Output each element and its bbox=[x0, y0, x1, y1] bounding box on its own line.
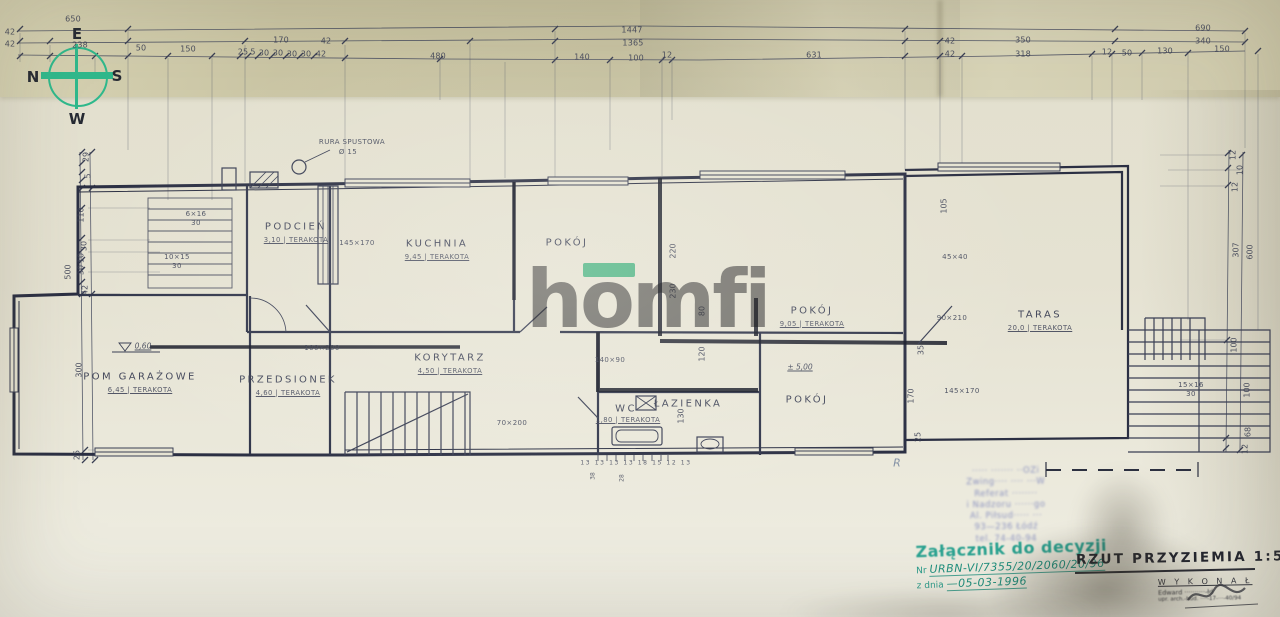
dim-label: 42 bbox=[945, 50, 956, 59]
dim-label: 300 bbox=[75, 362, 84, 377]
annotation-label: Ø 15 bbox=[339, 148, 357, 156]
room-area-label: 3,10 | TERAKOTA bbox=[264, 236, 329, 244]
dim-label: 130 bbox=[677, 408, 686, 423]
room-area-label: 4,60 | TERAKOTA bbox=[256, 389, 321, 397]
room-area-label: 9,45 | TERAKOTA bbox=[405, 253, 470, 261]
dim-label: 238 bbox=[72, 41, 88, 50]
dim-label: 5 bbox=[84, 173, 93, 178]
dim-label: 50 bbox=[1122, 49, 1133, 58]
dim-label: 130 bbox=[1157, 47, 1173, 56]
room-label: POKÓJ bbox=[546, 238, 589, 249]
dim-label: 1447 bbox=[621, 26, 642, 35]
dim-label: 307 bbox=[1232, 242, 1241, 257]
dim-label: 25 bbox=[238, 48, 249, 57]
dim-label: 30 bbox=[80, 241, 89, 251]
annotation-label: 10×15 bbox=[164, 253, 190, 261]
dim-label: 12 bbox=[1241, 444, 1250, 454]
annotation-label: 70×200 bbox=[497, 419, 528, 427]
dim-label: 42 bbox=[316, 50, 327, 59]
dim-label: 30 bbox=[259, 49, 270, 58]
dim-label: 30 bbox=[301, 50, 312, 59]
homfi-logo-text: homfi bbox=[526, 253, 769, 346]
homfi-logo-macron bbox=[583, 263, 635, 277]
dim-label: 105 bbox=[940, 198, 949, 213]
dim-label: 110 bbox=[77, 207, 86, 222]
dim-label: 100 bbox=[1243, 382, 1252, 397]
room-area-label: 6,45 | TERAKOTA bbox=[108, 386, 173, 394]
bottom-edge-shadow bbox=[780, 588, 1110, 617]
annotation-label: RURA SPUSTOWA bbox=[319, 138, 385, 146]
room-label: WC bbox=[615, 404, 637, 415]
dim-label: 10 bbox=[1236, 165, 1245, 175]
dim-label: 68 bbox=[1244, 427, 1253, 437]
room-label: ŁAZIENKA bbox=[654, 399, 722, 410]
annotation-label: 45×40 bbox=[942, 253, 968, 261]
room-label: PODCIEŃ bbox=[265, 222, 327, 233]
dim-label: 480 bbox=[430, 52, 446, 61]
dim-label: 25 bbox=[73, 450, 82, 460]
room-label: KUCHNIA bbox=[406, 239, 468, 250]
annotation-label: 140×90 bbox=[595, 356, 626, 364]
dim-label: 150 bbox=[1214, 45, 1230, 54]
scanned-floor-plan-photo: E N S W 65042422385015017042255303030304… bbox=[0, 0, 1280, 617]
dim-label: 100 bbox=[1230, 337, 1239, 352]
annotation-label: 30 bbox=[191, 219, 201, 227]
dim-label: 38 bbox=[590, 472, 597, 480]
dim-label: 42 bbox=[5, 28, 16, 37]
dim-label: 50 bbox=[136, 44, 147, 53]
room-area-label: 20,0 | TERAKOTA bbox=[1008, 324, 1073, 332]
dim-label: 340 bbox=[1195, 37, 1211, 46]
dim-label: 29 bbox=[82, 152, 91, 162]
dim-label: 170 bbox=[907, 388, 916, 403]
room-label: POKÓJ bbox=[786, 395, 829, 406]
dim-label: 12 bbox=[662, 51, 673, 60]
room-label: POM GARAŻOWE bbox=[83, 372, 196, 383]
dim-label: 42 bbox=[81, 285, 90, 295]
dim-label: 100 bbox=[628, 54, 644, 63]
room-label: KORYTARZ bbox=[414, 353, 485, 364]
room-area-label: 4,50 | TERAKOTA bbox=[418, 367, 483, 375]
room-area-label: 9,05 | TERAKOTA bbox=[780, 320, 845, 328]
annotation-label: 30 bbox=[1186, 390, 1196, 398]
dim-label: 28 bbox=[619, 474, 626, 482]
annotation-label: 100×200 bbox=[304, 344, 339, 352]
room-area-label: 1,80 | TERAKOTA bbox=[596, 416, 661, 424]
dim-label: 12 bbox=[1102, 48, 1113, 57]
dim-label: 650 bbox=[65, 15, 81, 24]
dim-label: 150 bbox=[180, 45, 196, 54]
annotation-label: 145×170 bbox=[339, 239, 374, 247]
dim-label: 350 bbox=[1015, 36, 1031, 45]
dim-label: 35 bbox=[917, 345, 926, 355]
dim-label: 10 bbox=[77, 253, 86, 263]
dim-label: 120 bbox=[698, 346, 707, 361]
dim-label: 42 bbox=[5, 40, 16, 49]
homfi-watermark-logo: homfi bbox=[526, 260, 769, 340]
decision-number-label: Nr bbox=[916, 566, 927, 576]
dim-label: 318 bbox=[1015, 50, 1031, 59]
dim-label: 25 bbox=[914, 432, 923, 442]
dim-label: 42 bbox=[321, 37, 332, 46]
dim-label: 30 bbox=[273, 49, 284, 58]
annotation-label: 145×170 bbox=[944, 387, 979, 395]
level-annotation: ± 5,00 bbox=[787, 363, 812, 372]
annotation-label: 6×16 bbox=[186, 210, 207, 218]
annotation-label: 90×210 bbox=[937, 314, 968, 322]
dim-label: 170 bbox=[273, 36, 289, 45]
level-annotation: 0,60 bbox=[135, 342, 152, 351]
dim-label: 500 bbox=[64, 264, 73, 279]
dim-label: 30 bbox=[77, 265, 86, 275]
dim-label: 1365 bbox=[622, 39, 643, 48]
dim-label: 140 bbox=[574, 53, 590, 62]
dim-label: 12 bbox=[1231, 182, 1240, 192]
room-label: TARAS bbox=[1018, 310, 1062, 321]
dim-label: 42 bbox=[945, 37, 956, 46]
dim-label: 600 bbox=[1246, 244, 1255, 259]
dim-label: 631 bbox=[806, 51, 822, 60]
dim-label: 5 bbox=[250, 48, 255, 57]
annotation-label: 30 bbox=[172, 262, 182, 270]
room-label: POKÓJ bbox=[791, 306, 834, 317]
dim-label: 690 bbox=[1195, 24, 1211, 33]
dim-label: 12 bbox=[1229, 150, 1238, 160]
dim-label: 13 13 13 13 18 15 12 13 bbox=[580, 460, 691, 467]
room-label: PRZEDSIONEK bbox=[239, 375, 337, 386]
annotation-label: 15×16 bbox=[1178, 381, 1204, 389]
dim-label: 30 bbox=[287, 50, 298, 59]
